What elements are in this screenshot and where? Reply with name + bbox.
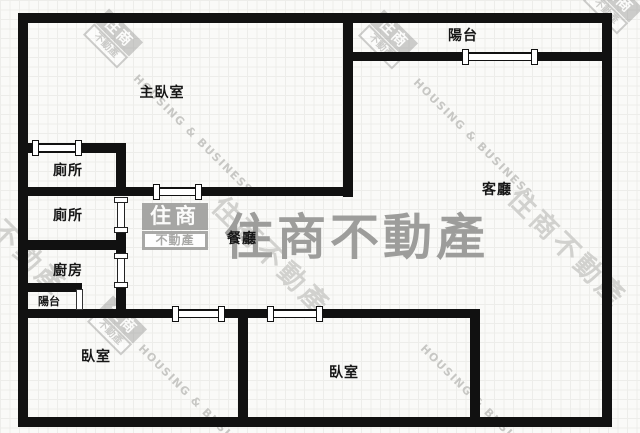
watermark-diagonal-zh: 住商不動產: [500, 178, 637, 315]
window-post: [75, 140, 82, 156]
room-label-dining-room: 餐廳: [227, 228, 257, 248]
room-label-living-room: 客廳: [482, 179, 512, 199]
door-toilet-lower: [114, 197, 128, 233]
watermark-brand-logo: 住商 不動產: [142, 203, 208, 250]
door-post: [114, 227, 128, 233]
window-pane: [273, 310, 317, 318]
opening-balcony-small: [76, 289, 83, 310]
window-post: [195, 184, 202, 200]
wall-outer-right: [602, 13, 612, 427]
room-label-bedroom-left: 臥室: [81, 346, 111, 366]
window-bedroom-right: [267, 306, 323, 322]
door-kitchen: [114, 253, 128, 288]
wall-masterbedroom-right: [343, 13, 353, 197]
window-pane: [178, 310, 219, 318]
window-dining: [153, 184, 202, 200]
window-livingroom: [462, 49, 538, 65]
wall-outer-bottom: [18, 417, 612, 427]
watermark-brand-name: 住商不動產: [224, 198, 489, 269]
wall-toilet-right: [116, 143, 126, 196]
watermark-diagonal-en: HOUSING & BUSINESS: [411, 76, 536, 201]
window-pane: [38, 144, 76, 152]
wall-outer-left: [18, 13, 28, 427]
wall-kitchen-balcony-divider: [18, 283, 82, 292]
door-post: [114, 282, 128, 288]
room-label-balcony-top: 陽台: [448, 25, 478, 45]
wall-bedrooms-top: [18, 309, 480, 318]
window-post: [531, 49, 538, 65]
room-label-bedroom-right: 臥室: [329, 362, 359, 382]
floor-plan: HOUSING & BUSINESS HOUSING & BUSINESS HO…: [0, 0, 640, 433]
room-label-kitchen: 廚房: [53, 260, 83, 280]
window-post: [316, 306, 323, 322]
brand-logo-subtext: 不動產: [142, 231, 208, 250]
window-bedroom-left: [172, 306, 225, 322]
wall-bedroom-right-side: [470, 309, 480, 427]
window-pane: [159, 188, 196, 196]
wall-bedrooms-divider: [238, 309, 248, 427]
door-panel: [117, 258, 125, 283]
room-label-toilet-lower: 廁所: [53, 205, 83, 225]
room-label-balcony-small: 陽台: [38, 293, 60, 309]
window-pane: [468, 53, 532, 61]
window-post: [218, 306, 225, 322]
room-label-master-bedroom: 主臥室: [140, 82, 185, 102]
door-panel: [117, 202, 125, 228]
wall-toilet-kitchen-divider: [18, 240, 125, 250]
brand-logo-text: 住商: [142, 203, 208, 230]
room-label-toilet-upper: 廁所: [53, 160, 83, 180]
wall-outer-top: [18, 13, 612, 23]
window-toilet-upper: [32, 140, 82, 156]
